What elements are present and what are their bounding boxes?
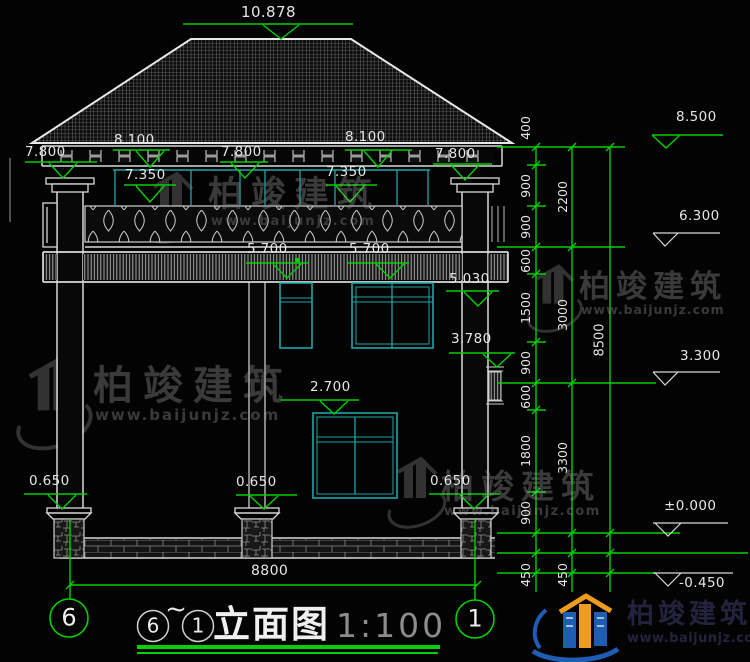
dim-eave-left: 7.800 bbox=[25, 146, 66, 160]
watermark-brand-bottom: 柏竣建筑 bbox=[441, 470, 601, 503]
dim-balcony-floor-left: 5.700 bbox=[247, 243, 288, 257]
cad-elevation-canvas: 10.878 8.100 8.100 7.800 7.800 7.800 7.3… bbox=[0, 0, 750, 662]
chain-seg-600b: 600 bbox=[520, 385, 533, 409]
level-0000: ±0.000 bbox=[664, 500, 716, 514]
dim-roof-top-center: 8.100 bbox=[345, 131, 386, 145]
title-axis-from: 6 bbox=[147, 616, 160, 636]
chain-seg-1800: 1800 bbox=[520, 435, 533, 467]
chain-seg-900a: 900 bbox=[520, 174, 533, 198]
dim-window-top: 2.700 bbox=[310, 381, 351, 395]
dim-plinth-middle: 0.650 bbox=[236, 476, 277, 490]
dim-total-width: 8800 bbox=[251, 564, 288, 578]
axis-number-right: 1 bbox=[467, 607, 482, 631]
level-neg0450: -0.450 bbox=[679, 577, 725, 591]
dim-window-head: 5.030 bbox=[449, 273, 490, 287]
chain-floor-3000: 3000 bbox=[557, 299, 570, 331]
title-axis-to: 1 bbox=[192, 616, 205, 636]
dim-upper-window-left: 7.350 bbox=[125, 169, 166, 183]
chain-seg-450b: 450 bbox=[557, 563, 570, 587]
watermark-url-balcony: www.baijunjz.com bbox=[211, 215, 376, 228]
watermark-brand-right: 柏竣建筑 bbox=[579, 272, 727, 303]
title-tilde: ~ bbox=[165, 596, 187, 622]
wall-vent bbox=[486, 367, 504, 404]
title-underline-thin bbox=[137, 652, 438, 654]
dim-plinth-left: 0.650 bbox=[29, 475, 70, 489]
drawing-title: 立面图 bbox=[213, 606, 330, 643]
chain-seg-400: 400 bbox=[520, 116, 533, 140]
watermark-url-bottom: www.baijunjz.com bbox=[444, 505, 601, 518]
level-8500: 8.500 bbox=[676, 111, 717, 125]
logo-brand: 柏竣建筑 bbox=[627, 601, 750, 628]
chain-seg-1500: 1500 bbox=[520, 292, 533, 324]
watermark-brand-balcony: 柏竣建筑 bbox=[208, 178, 380, 213]
dim-eave-center: 7.800 bbox=[221, 146, 262, 160]
dim-vent-top: 3.780 bbox=[451, 333, 492, 347]
axis-number-left: 6 bbox=[61, 606, 76, 630]
elevation-drawing bbox=[0, 0, 750, 662]
dim-eave-right: 7.800 bbox=[435, 148, 476, 162]
watermark-url-right: www.baijunjz.com bbox=[581, 304, 725, 317]
watermark-brand-left: 柏竣建筑 bbox=[93, 366, 293, 406]
chain-seg-900b: 900 bbox=[520, 215, 533, 239]
dentil-band bbox=[55, 150, 495, 162]
chain-seg-450a: 450 bbox=[520, 563, 533, 587]
logo-url: www.baijunjz.com bbox=[627, 632, 750, 645]
level-3300: 3.300 bbox=[680, 350, 721, 364]
watermark-url-left: www.baijunjz.com bbox=[95, 408, 280, 423]
level-6300: 6.300 bbox=[679, 210, 720, 224]
chain-floor-2200: 2200 bbox=[557, 181, 570, 213]
drawing-scale: 1:100 bbox=[336, 609, 446, 642]
dim-ridge-height: 10.878 bbox=[241, 5, 296, 20]
chain-total-8500: 8500 bbox=[594, 323, 607, 356]
chain-seg-900c: 900 bbox=[520, 351, 533, 375]
chain-seg-600a: 600 bbox=[520, 249, 533, 273]
dim-roof-top-left: 8.100 bbox=[114, 134, 155, 148]
dim-balcony-floor-right: 5.700 bbox=[349, 243, 390, 257]
